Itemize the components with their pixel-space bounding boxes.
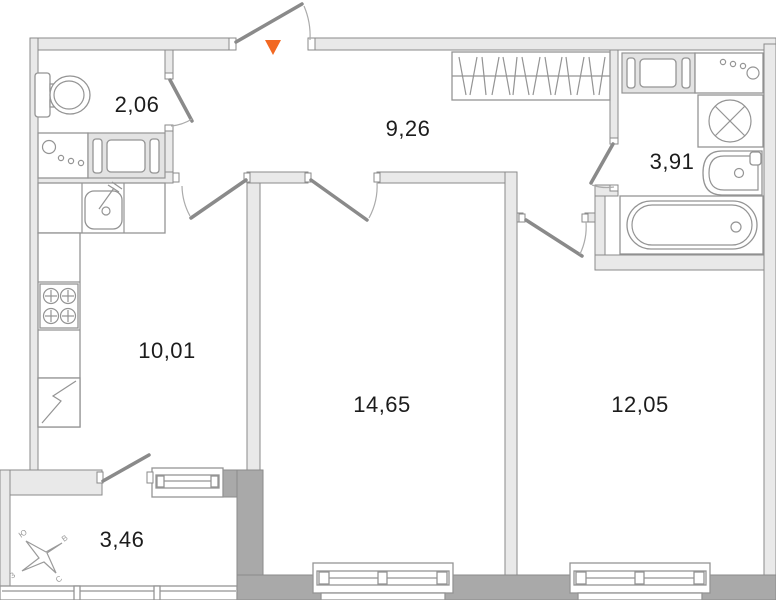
living-room-door — [305, 173, 380, 220]
window-living — [313, 563, 453, 600]
bathroom-door — [591, 138, 618, 191]
compass-north-label: С — [54, 574, 64, 585]
bath-counter — [695, 53, 763, 93]
room-label-balcony: 3,46 — [100, 527, 145, 552]
room-label-living-room: 14,65 — [353, 392, 411, 417]
wall-top-left — [30, 38, 233, 50]
wall-hall-south-2 — [377, 172, 517, 183]
wall-hall-south-1 — [247, 172, 308, 183]
compass-south-label: Ю — [17, 528, 29, 540]
bathtub-icon — [620, 196, 763, 254]
wall-kitchen-living — [247, 183, 260, 470]
wall-living-bedroom — [505, 172, 517, 577]
room-label-kitchen: 10,01 — [138, 338, 196, 363]
room-label-hallway: 9,26 — [386, 116, 431, 141]
fridge-icon — [38, 378, 80, 427]
bath-cabinet-icon — [622, 53, 695, 93]
stove-icon — [40, 284, 78, 328]
wardrobe-icon — [452, 52, 610, 100]
compass-east-label: В — [60, 533, 70, 543]
wall-top-right — [310, 38, 776, 50]
wall-balcony-left — [0, 470, 10, 600]
floor-plan: Ю В З С 2,06 9,26 3,91 10,01 14,65 12,05… — [0, 0, 776, 600]
wall-bath-left-upper — [610, 50, 618, 142]
wall-balcony-corner — [223, 470, 237, 497]
compass-icon: Ю В З С — [8, 528, 70, 585]
cabinet-icon — [88, 133, 165, 178]
room-label-bathroom: 3,91 — [650, 149, 695, 174]
room-label-bedroom: 12,05 — [611, 392, 669, 417]
floor-plan-canvas: Ю В З С 2,06 9,26 3,91 10,01 14,65 12,05… — [0, 0, 776, 600]
washbasin-icon — [703, 151, 762, 195]
utility-counter — [38, 133, 88, 178]
washing-machine-icon — [698, 95, 763, 147]
wc-door — [165, 73, 192, 131]
bedroom-door — [519, 214, 588, 256]
window-bedroom — [570, 563, 710, 600]
window-kitchen-balcony — [152, 468, 223, 497]
wall-balcony-top — [0, 470, 102, 495]
room-label-wc: 2,06 — [115, 92, 160, 117]
entrance-marker-icon — [265, 40, 281, 55]
wall-tub-bottom — [595, 255, 764, 270]
wall-right — [764, 44, 776, 577]
balcony-glazing — [0, 586, 237, 600]
kitchen-door — [173, 173, 250, 218]
balcony-door — [97, 455, 153, 483]
toilet-icon — [35, 73, 90, 117]
